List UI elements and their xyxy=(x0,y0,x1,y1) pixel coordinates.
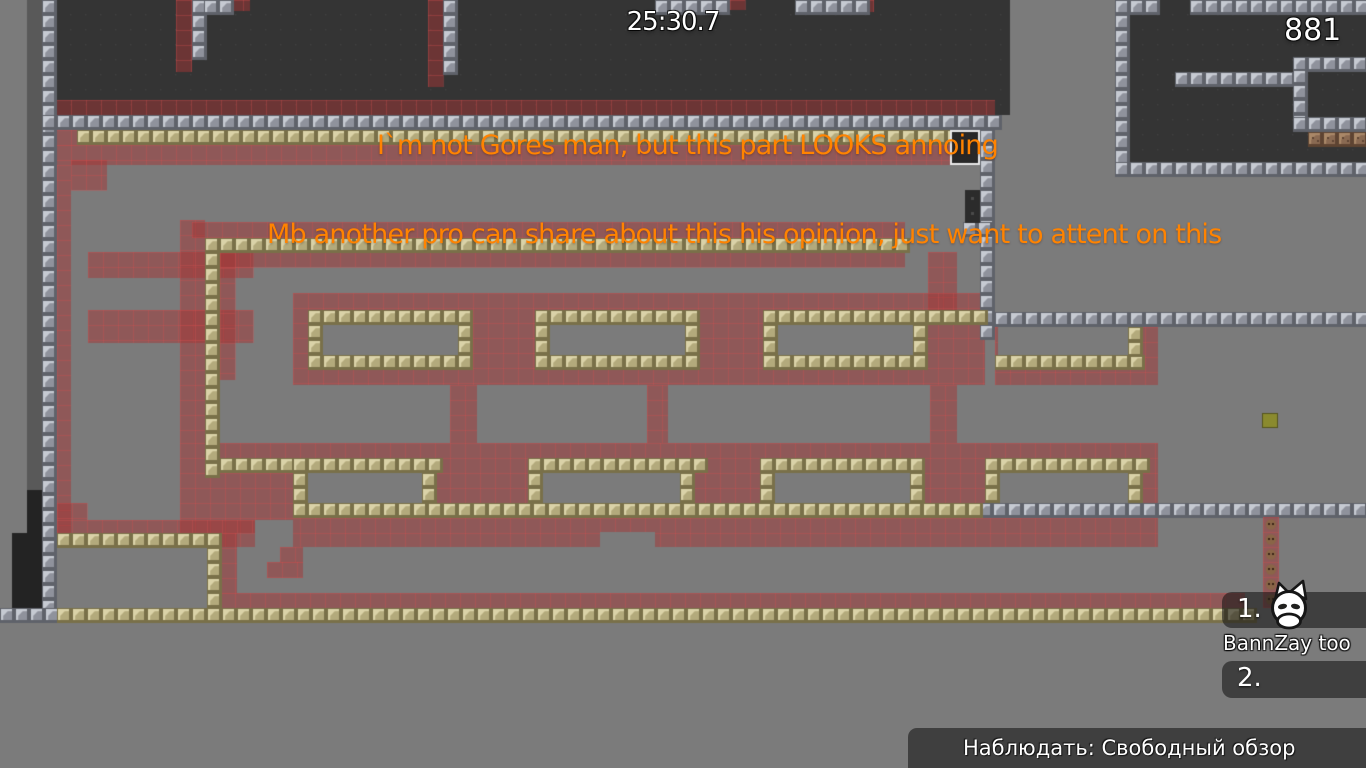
top-right-counter: 881 xyxy=(1284,13,1341,48)
broadcast-line-1: I`m not Gores man, but this part LOOKS a… xyxy=(377,130,998,161)
spectated-player-name: BannZay too xyxy=(1223,631,1366,655)
tee-feet xyxy=(1278,614,1301,628)
game-map-canvas xyxy=(0,0,1366,768)
game-screen: 25:30.7 881 I`m not Gores man, but this … xyxy=(0,0,1366,768)
spectate-status-bar: Наблюдать: Свободный обзор xyxy=(908,728,1366,768)
tee-avatar-kitty xyxy=(1262,579,1316,633)
spectator-slot-2: 2. xyxy=(1222,661,1366,698)
race-timer: 25:30.7 xyxy=(627,7,720,37)
broadcast-line-2: Mb another pro can share about this his … xyxy=(267,219,1221,250)
